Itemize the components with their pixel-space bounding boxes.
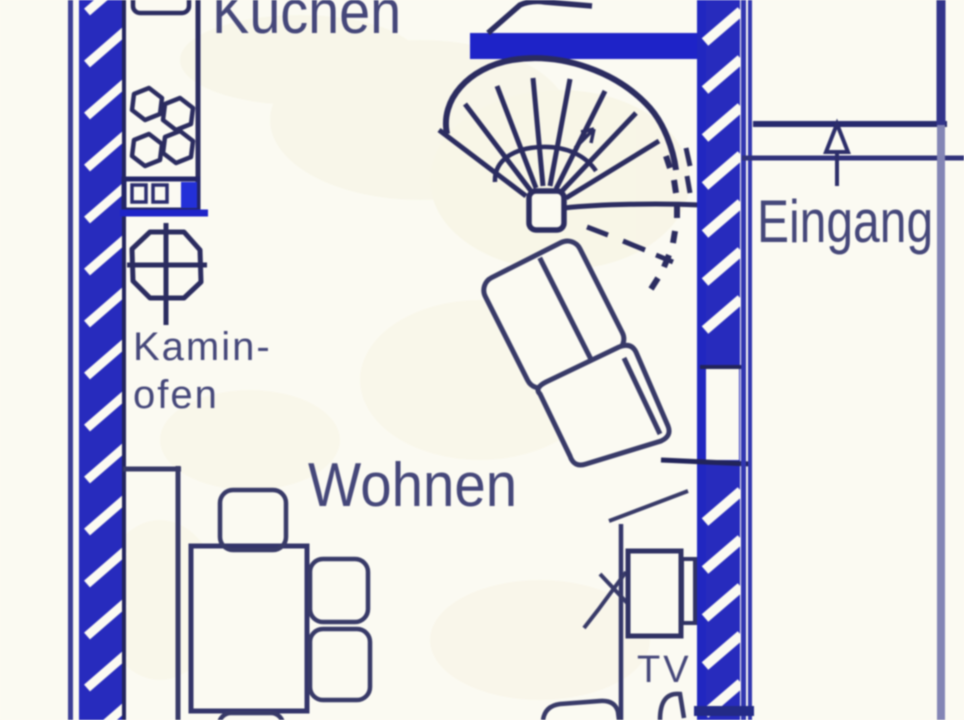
svg-text:Wohnen: Wohnen [308, 450, 517, 520]
svg-text:Kamin-: Kamin- [133, 325, 272, 369]
svg-text:Eingang: Eingang [757, 188, 933, 255]
svg-text:TV: TV [637, 649, 692, 691]
svg-text:ofen: ofen [133, 373, 219, 417]
svg-text:Küchen: Küchen [212, 0, 401, 47]
